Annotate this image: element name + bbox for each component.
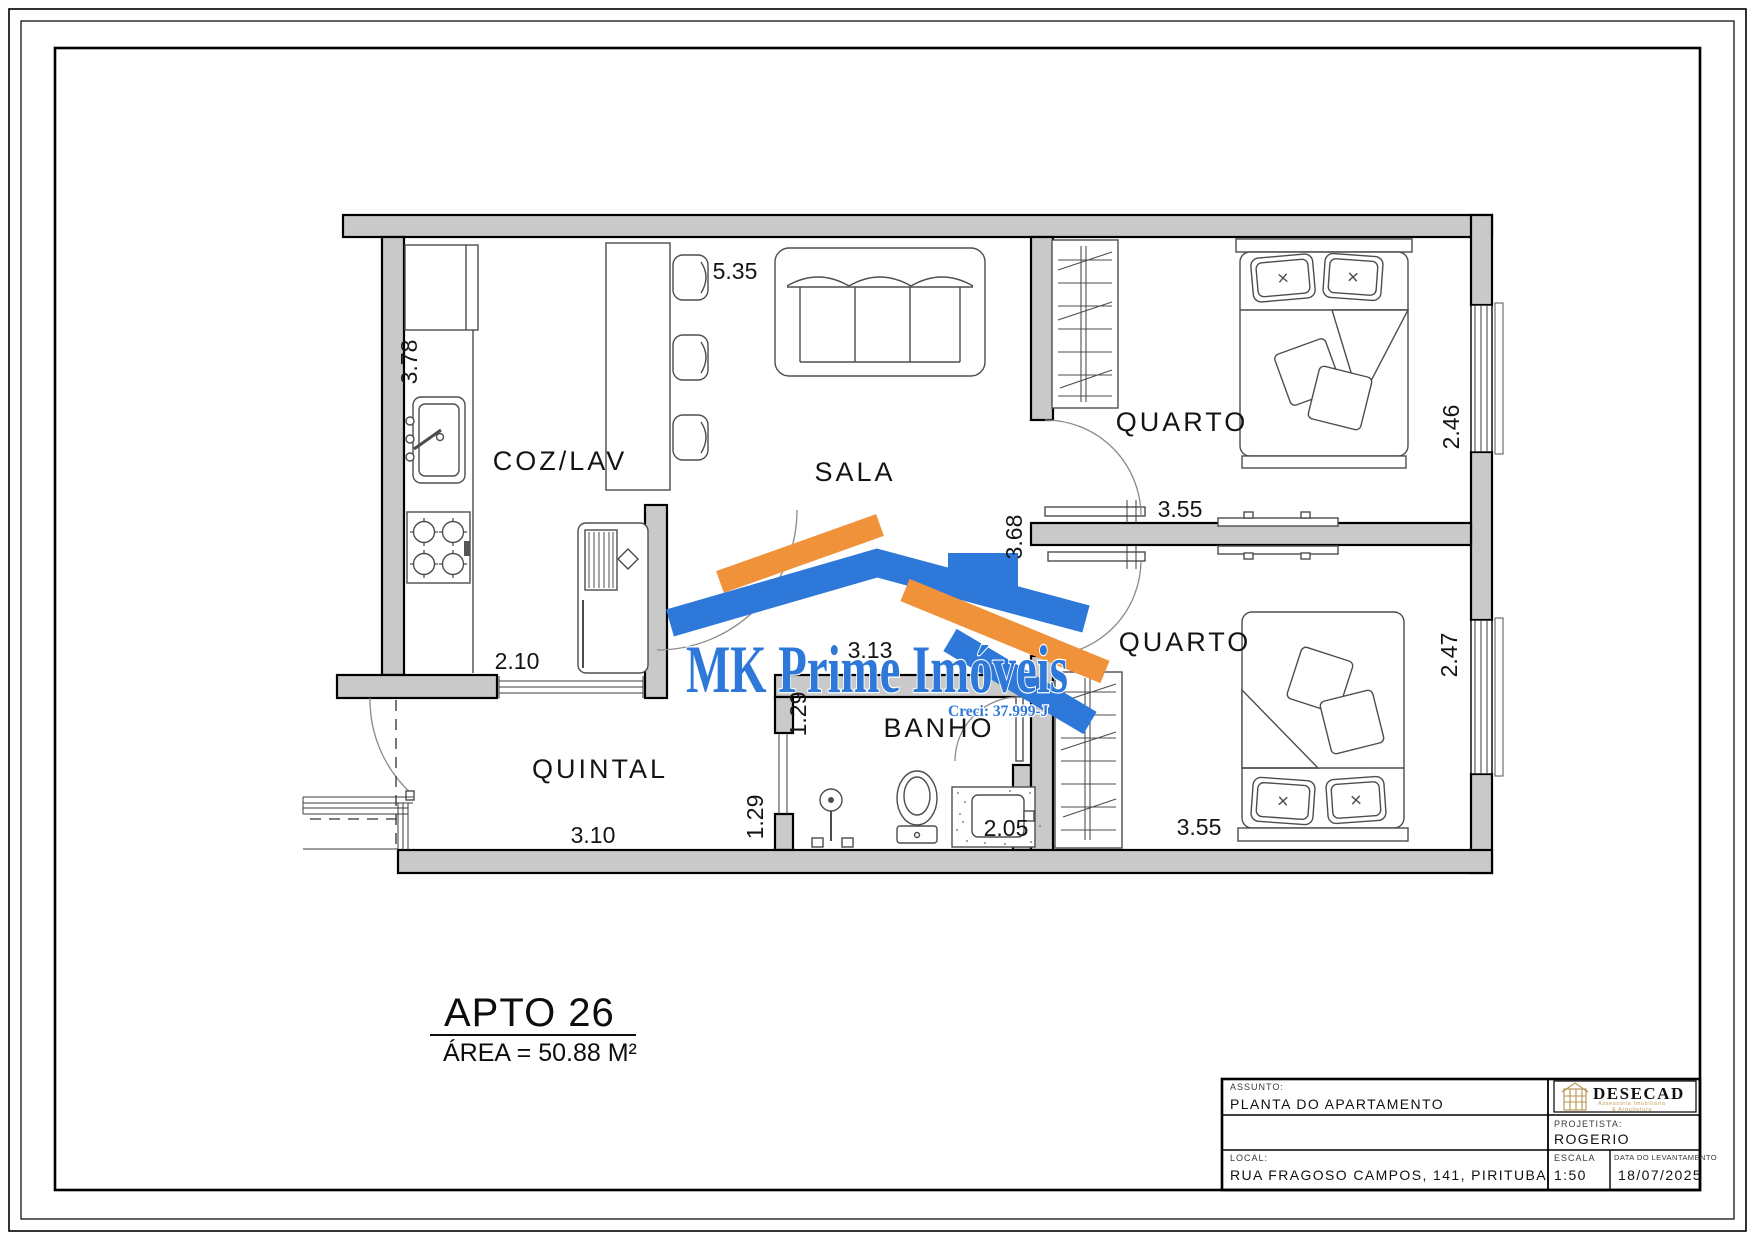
room-label-coz-lav: COZ/LAV [493, 446, 628, 476]
dim-quintal-bottom: 3.10 [571, 822, 616, 848]
data-levantamento-value: 18/07/2025 [1618, 1167, 1702, 1183]
stove [407, 512, 470, 583]
shower-icon [812, 789, 853, 847]
desecad-subtitle-2: & Arquitetura [1612, 1107, 1652, 1113]
assunto-label: ASSUNTO: [1230, 1082, 1284, 1092]
window-quarto-bottom [1471, 618, 1503, 776]
dim-quarto-bottom-width: 3.55 [1177, 814, 1222, 840]
dim-corredor-upper: 1.29 [785, 692, 811, 737]
bed-quarto-top [1236, 239, 1412, 468]
assunto-value: PLANTA DO APARTAMENTO [1230, 1096, 1444, 1112]
title-block: ASSUNTO: PLANTA DO APARTAMENTO PROJETIST… [1222, 1079, 1717, 1190]
bar-stool [673, 415, 708, 460]
data-levantamento-label: DATA DO LEVANTAMENTO [1614, 1153, 1717, 1162]
floor-plan [303, 215, 1503, 873]
kitchen-sliding-door [499, 676, 643, 698]
toilet [897, 771, 937, 843]
kitchen-sink [406, 397, 465, 483]
dim-banho-bottom: 2.05 [984, 815, 1029, 841]
quintal-door-swing [370, 698, 414, 800]
dim-cozinha-left: 3.78 [396, 340, 422, 385]
sofa [775, 248, 985, 376]
projetista-value: ROGERIO [1554, 1131, 1630, 1147]
quintal-entry [303, 700, 413, 850]
drawing-sheet: MK Prime Imóveis Creci: 37.999-J COZ/LAV… [0, 0, 1755, 1240]
escala-label: ESCALA [1554, 1153, 1596, 1163]
dim-corredor-lower: 1.29 [742, 795, 768, 840]
dim-sala-right: 3.68 [1001, 515, 1027, 560]
apartment-name: APTO 26 [444, 991, 615, 1035]
bar-stool [673, 255, 708, 300]
refrigerator [578, 523, 648, 673]
dim-sala-bottom: 3.13 [848, 637, 893, 663]
dim-cozinha-door: 2.10 [495, 648, 540, 674]
bed-quarto-bottom [1238, 612, 1408, 841]
watermark: MK Prime Imóveis Creci: 37.999-J [670, 525, 1105, 723]
projetista-label: PROJETISTA: [1554, 1119, 1622, 1129]
dim-quarto-top-width: 3.55 [1158, 496, 1203, 522]
dim-sala-top: 5.35 [713, 258, 758, 284]
dim-quarto-top-depth: 2.46 [1438, 405, 1464, 450]
closet-quarto-top [1052, 240, 1118, 408]
room-label-quarto-bottom: QUARTO [1119, 627, 1252, 657]
room-label-quarto-top: QUARTO [1116, 407, 1249, 437]
apartment-title: APTO 26 ÁREA = 50.88 M² [430, 991, 637, 1067]
local-label: LOCAL: [1230, 1153, 1268, 1163]
window-quarto-top [1471, 303, 1503, 454]
apartment-area: ÁREA = 50.88 M² [443, 1038, 637, 1067]
room-label-quintal: QUINTAL [532, 754, 668, 784]
dim-quarto-bottom-depth: 2.47 [1436, 633, 1462, 678]
desecad-logo: DESECAD Assessoria Imobiliária & Arquite… [1554, 1081, 1696, 1113]
bar-stool [673, 335, 708, 380]
building-icon [1562, 1083, 1588, 1110]
escala-value: 1:50 [1554, 1167, 1587, 1183]
room-label-sala: SALA [814, 457, 895, 487]
local-value: RUA FRAGOSO CAMPOS, 141, PIRITUBA [1230, 1167, 1547, 1183]
room-label-banho: BANHO [883, 713, 994, 743]
